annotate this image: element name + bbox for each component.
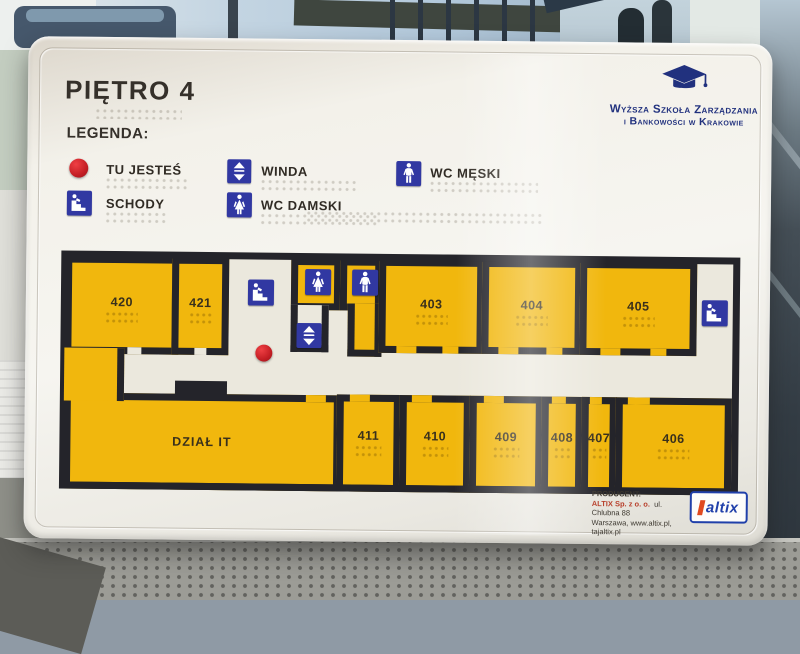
door-gap: [628, 397, 650, 404]
door-gap: [396, 346, 416, 353]
radiator: [0, 360, 26, 490]
you-are-here-dot: [69, 159, 88, 178]
producer-city-line: Warszawa, www.altix.pl, tajaltix.pl: [591, 518, 691, 538]
stairs-icon: [702, 300, 728, 326]
door-gap: [650, 349, 666, 356]
door-gap: [306, 395, 326, 402]
door-gap: [442, 346, 458, 353]
door-gap: [546, 348, 562, 355]
producer-info: PRODUCENT: ALTIX Sp. z o. o. ul. Chlubna…: [591, 489, 691, 538]
braille-strip: [106, 212, 168, 224]
door-gap: [412, 395, 432, 402]
door-gap: [484, 396, 504, 403]
stairs-icon: [248, 279, 274, 305]
elevator-icon: [296, 323, 321, 348]
braille-strip: [96, 109, 182, 120]
legend-label-elevator: WINDA: [261, 164, 308, 179]
door-gap: [552, 397, 566, 404]
legend-label-you-are-here: TU JESTEŚ: [106, 162, 181, 178]
door-gap: [498, 347, 518, 354]
legend-label-stairs: SCHODY: [106, 196, 165, 212]
wc-women-icon: [305, 269, 331, 295]
wc-men-icon: [396, 161, 421, 186]
perforated-metal-stand: [0, 538, 800, 600]
you-are-here-dot: [255, 345, 272, 362]
legend-heading: LEGENDA:: [67, 125, 150, 143]
altix-logo: altix: [690, 491, 748, 524]
door-gap: [600, 348, 620, 355]
floor-title: PIĘTRO 4: [65, 75, 196, 107]
university-name-line2: i Bankowości w Krakowie: [578, 115, 790, 129]
door-gap: [127, 347, 141, 354]
braille-strip: [307, 211, 542, 227]
stairs-icon: [67, 191, 92, 216]
legend-label-wc-men: WC MĘSKI: [430, 165, 501, 181]
tactile-floor-sign-board: PIĘTRO 4 LEGENDA: TU JESTEŚ SCHODY WINDA…: [23, 36, 772, 546]
wall-bump: [175, 381, 227, 398]
door-gap: [194, 348, 206, 355]
background-left-glass: [0, 50, 30, 190]
door-gap: [590, 397, 602, 404]
university-logo: Wyższa Szkoła Zarządzania i Bankowości w…: [578, 62, 791, 129]
background-car-window: [26, 9, 164, 22]
braille-strip: [430, 181, 538, 193]
altix-logo-bar: [697, 500, 705, 515]
door-gap: [350, 395, 370, 402]
altix-logo-text: altix: [706, 499, 739, 516]
wc-women-icon: [227, 192, 252, 217]
braille-strip: [106, 178, 190, 190]
elevator-icon: [227, 159, 251, 183]
map-outer-wall: [59, 250, 740, 495]
wc-men-icon: [352, 270, 378, 296]
producer-company: ALTIX Sp. z o. o.: [592, 499, 650, 509]
floor-map: 420 421 403 404 405 DZIAŁ IT 411 410: [59, 250, 740, 495]
graduation-cap-icon: [658, 84, 710, 102]
room-dzial-it-lobe: [64, 348, 125, 402]
braille-strip: [261, 180, 357, 192]
university-name-line1: Wyższa Szkoła Zarządzania: [578, 103, 790, 117]
